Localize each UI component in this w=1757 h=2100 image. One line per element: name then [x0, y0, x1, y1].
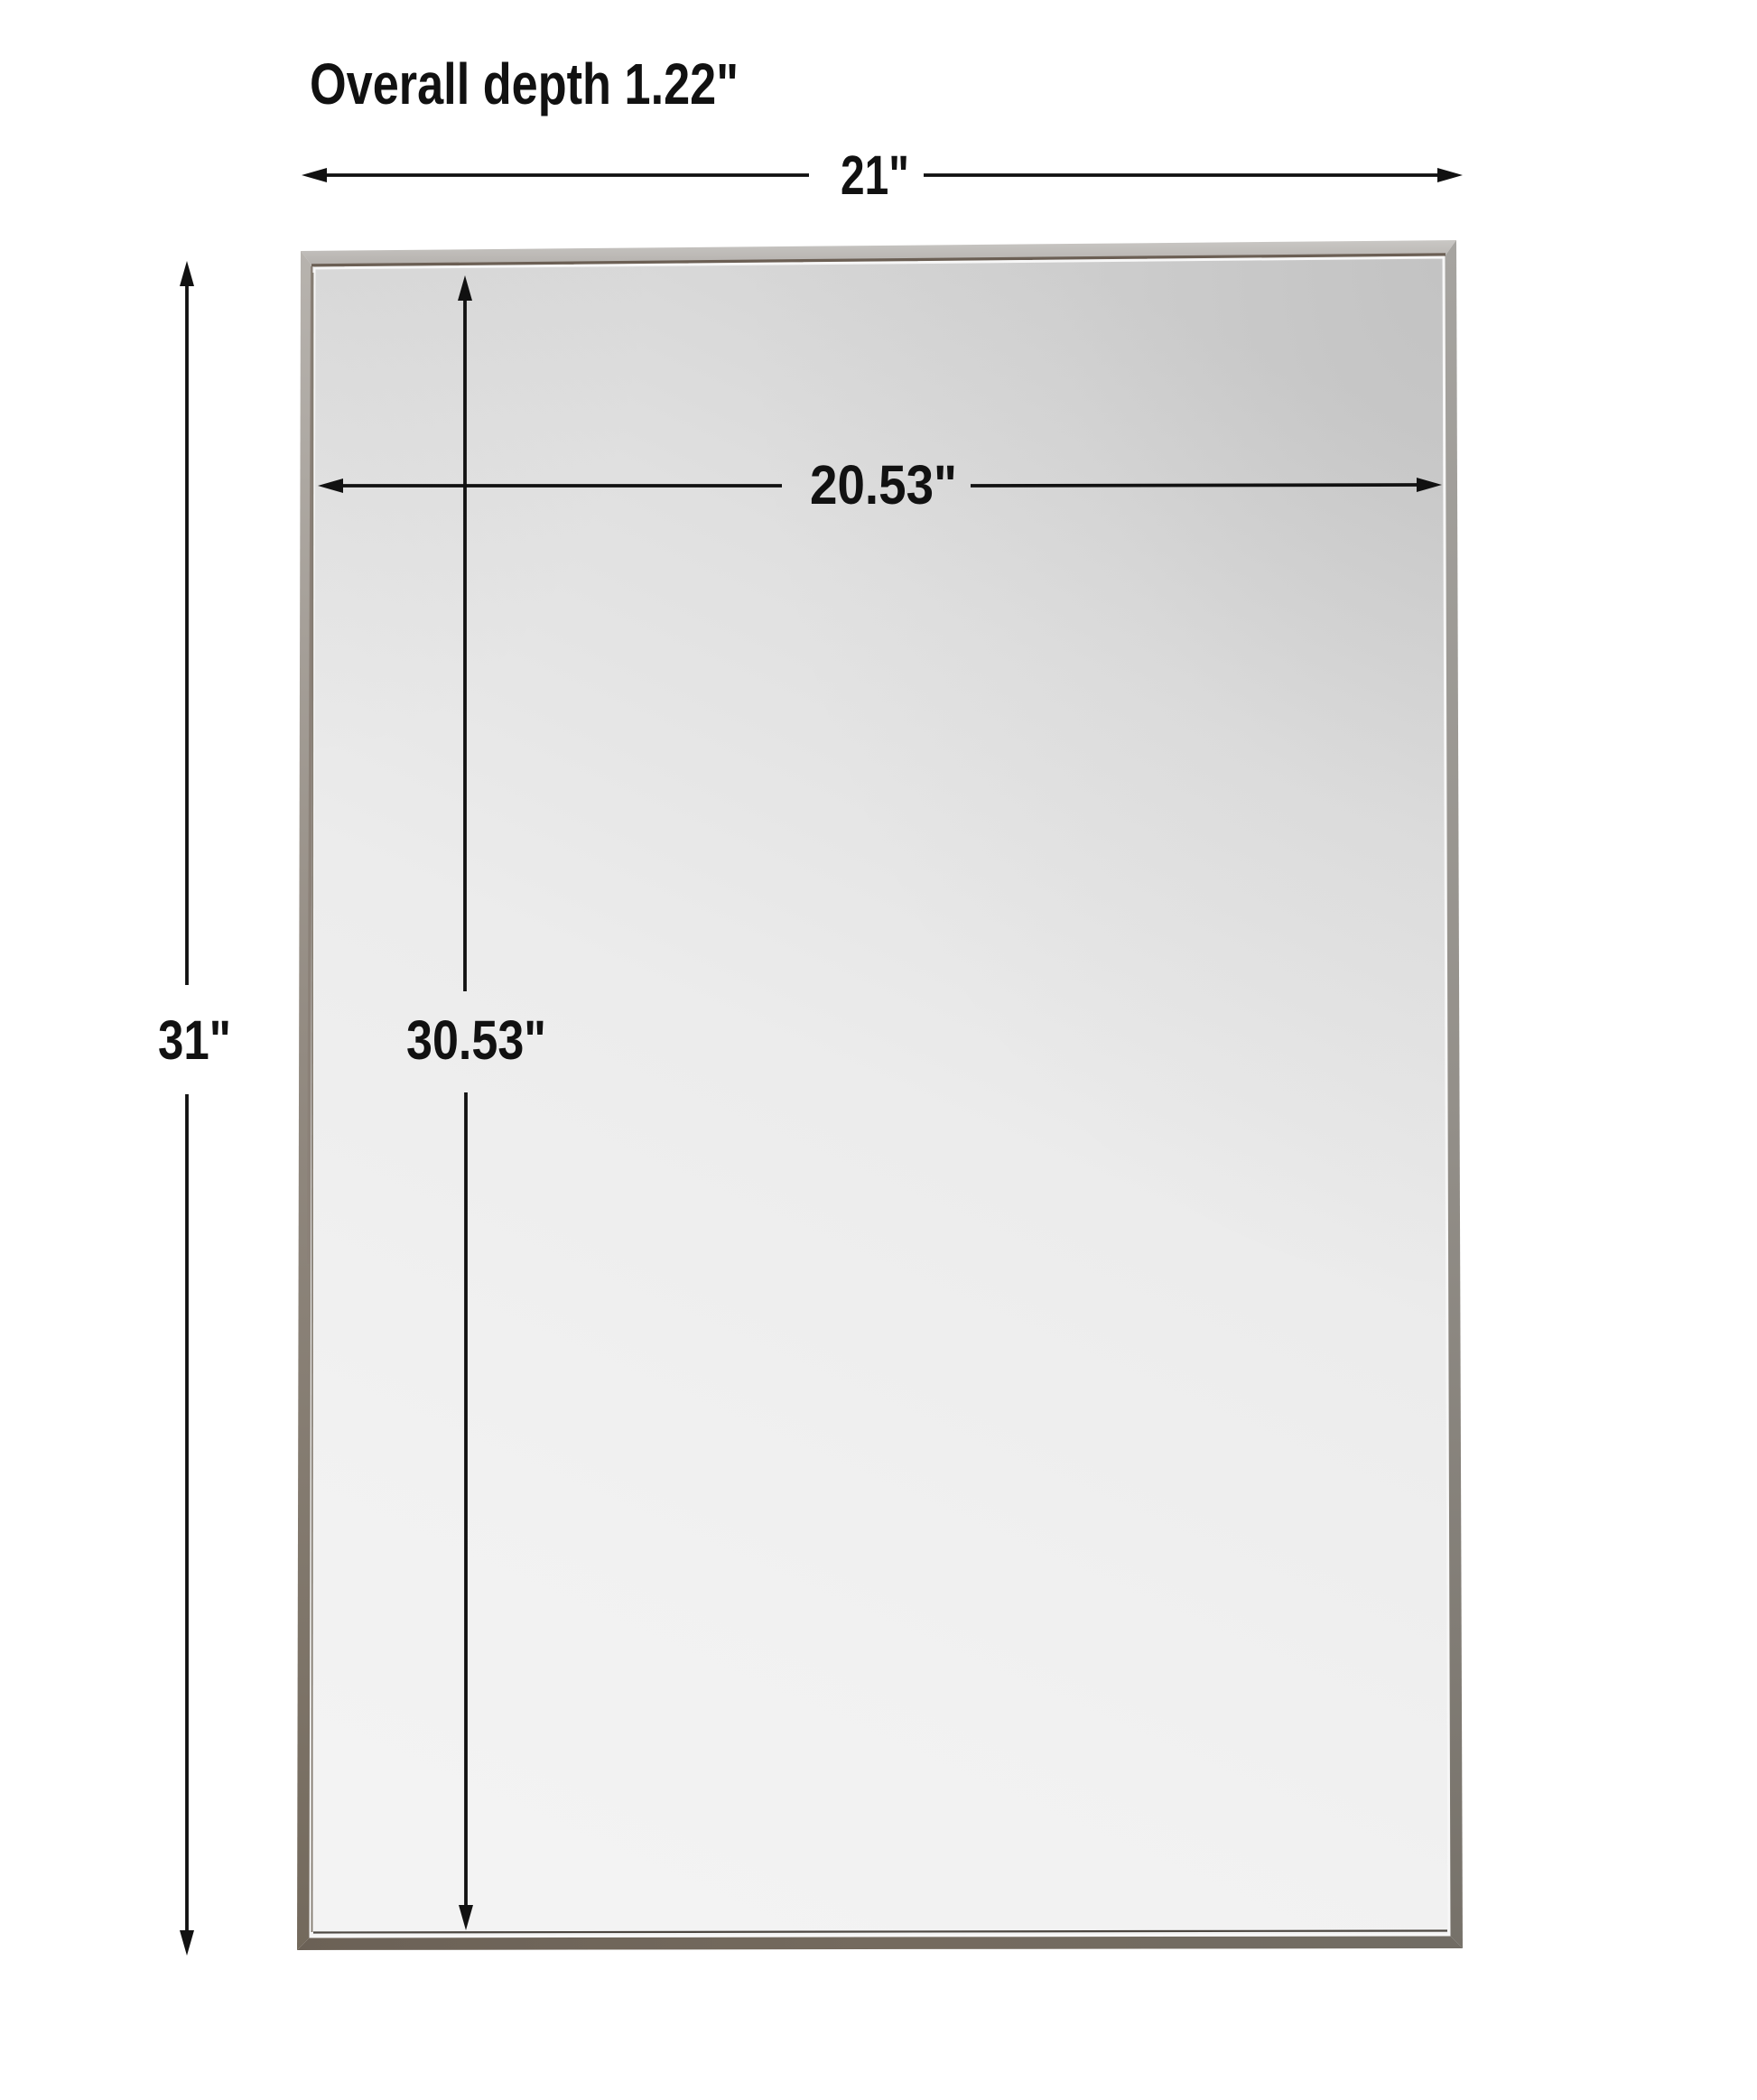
svg-text:20.53": 20.53"	[810, 454, 957, 516]
svg-text:Overall depth 1.22": Overall depth 1.22"	[310, 51, 739, 116]
svg-text:21": 21"	[841, 144, 909, 206]
svg-text:31": 31"	[158, 1009, 231, 1071]
svg-text:30.53": 30.53"	[406, 1009, 546, 1071]
